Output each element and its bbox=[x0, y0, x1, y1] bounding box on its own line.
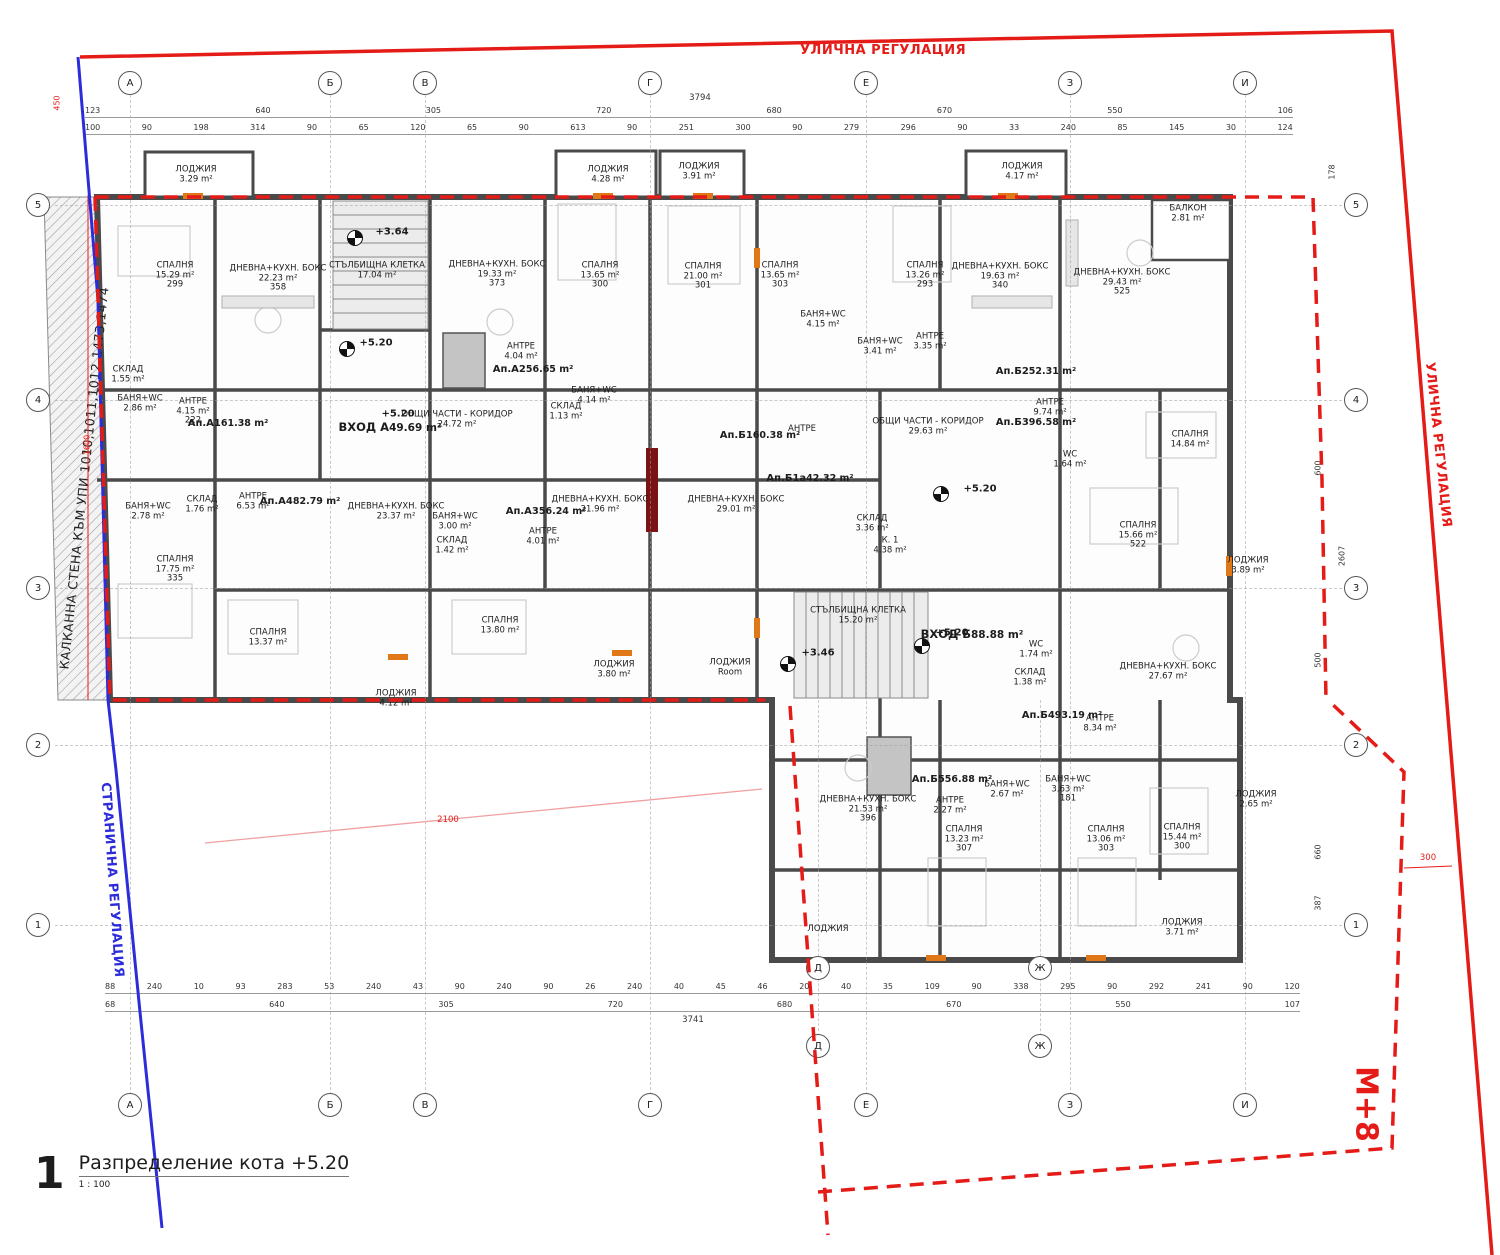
dim-value: 720 bbox=[596, 106, 611, 115]
street-regulation-label-top: УЛИЧНА РЕГУЛАЦИЯ bbox=[800, 43, 966, 58]
room-label: БАНЯ+WC2.78 m² bbox=[125, 502, 170, 521]
axis-bubble: В bbox=[413, 71, 437, 95]
room-label: СПАЛНЯ15.66 m²522 bbox=[1119, 522, 1158, 551]
dim-value: 90 bbox=[519, 123, 529, 132]
apartment-label: Ап.Б396.58 m² bbox=[996, 417, 1076, 429]
room-area: 3.41 m² bbox=[857, 347, 902, 357]
room-area: 3.80 m² bbox=[593, 670, 634, 680]
grid-line-horizontal bbox=[55, 400, 1347, 401]
dim-value: 680 bbox=[777, 1000, 792, 1009]
room-label: СПАЛНЯ13.80 m² bbox=[481, 616, 520, 635]
party-wall-label: КАЛКАННА СТЕНА КЪМ УПИ 1010,1011,1012,14… bbox=[56, 286, 111, 670]
room-area: 4.28 m² bbox=[587, 175, 628, 185]
bottom-overall-dim: 3741 bbox=[682, 1015, 704, 1025]
room-label: БАНЯ+WC3.00 m² bbox=[432, 512, 477, 531]
room-dim: 358 bbox=[230, 284, 327, 294]
axis-bubble: Ж bbox=[1028, 956, 1052, 980]
room-label: СКЛАД1.55 m² bbox=[111, 365, 144, 384]
room-area: 14.84 m² bbox=[1171, 440, 1210, 450]
survey-point-icon bbox=[933, 486, 949, 502]
dim-value: 300 bbox=[735, 123, 750, 132]
dim-value: 670 bbox=[937, 106, 952, 115]
elevator-a bbox=[443, 333, 485, 388]
room-label: СКЛАД1.38 m² bbox=[1013, 668, 1046, 687]
dim-value: 292 bbox=[1149, 982, 1164, 991]
floor-plan-sheet: УЛИЧНА РЕГУЛАЦИЯ УЛИЧНА РЕГУЛАЦИЯ СТРАНИ… bbox=[0, 0, 1500, 1255]
room-label: АНТРЕ8.34 m² bbox=[1083, 714, 1116, 733]
room-label: СПАЛНЯ13.06 m²303 bbox=[1087, 826, 1126, 855]
dim-value: 198 bbox=[193, 123, 208, 132]
dim-value: 35 bbox=[883, 982, 893, 991]
room-dim: 299 bbox=[156, 281, 195, 291]
drawing-title: Разпределение кота +5.20 bbox=[79, 1152, 350, 1177]
room-name: Ап.Б5 bbox=[912, 774, 945, 785]
dim-value: 550 bbox=[1107, 106, 1122, 115]
room-area: 4.01 m² bbox=[526, 537, 559, 547]
room-name: Ап.А3 bbox=[506, 506, 539, 517]
room-label: СПАЛНЯ14.84 m² bbox=[1171, 430, 1210, 449]
room-dim: 301 bbox=[684, 282, 723, 292]
room-area: 2.67 m² bbox=[984, 790, 1029, 800]
level-mark: +3.64 bbox=[375, 226, 408, 237]
room-label: ДНЕВНА+КУХН. БОКС29.43 m²525 bbox=[1074, 269, 1171, 298]
room-label: ЛОДЖИЯ2.65 m² bbox=[1235, 790, 1276, 809]
dim-value: 90 bbox=[307, 123, 317, 132]
room-dim: 396 bbox=[820, 815, 917, 825]
room-area: 8.34 m² bbox=[1083, 724, 1116, 734]
room-area: 9.74 m² bbox=[1033, 408, 1066, 418]
axis-bubble: Б bbox=[318, 1093, 342, 1117]
room-label: WC1.64 m² bbox=[1053, 450, 1086, 469]
dim-value: 670 bbox=[946, 1000, 961, 1009]
room-name: Ап.А1 bbox=[188, 418, 221, 429]
room-label: СПАЛНЯ17.75 m²335 bbox=[156, 556, 195, 585]
room-dim: 307 bbox=[945, 845, 984, 855]
dim-value: 10 bbox=[194, 982, 204, 991]
room-area: Room bbox=[709, 668, 750, 678]
room-area: 88.88 m² bbox=[971, 629, 1023, 641]
room-label: БАНЯ+WC2.67 m² bbox=[984, 780, 1029, 799]
dim-value: 283 bbox=[277, 982, 292, 991]
room-label: ЛОДЖИЯ3.80 m² bbox=[593, 660, 634, 679]
survey-point-icon bbox=[347, 230, 363, 246]
dim-value: 241 bbox=[1196, 982, 1211, 991]
room-area: 52.31 m² bbox=[1029, 366, 1076, 377]
axis-bubble: 5 bbox=[26, 193, 50, 217]
room-dim: 300 bbox=[581, 281, 620, 291]
dim-value: 26 bbox=[585, 982, 595, 991]
axis-bubble: 1 bbox=[26, 913, 50, 937]
axis-bubble: Д bbox=[806, 1034, 830, 1058]
top-overall-dim: 3794 bbox=[689, 93, 711, 103]
room-label: БАНЯ+WC3.41 m² bbox=[857, 337, 902, 356]
dim-value: 640 bbox=[255, 106, 270, 115]
dim-value: 90 bbox=[142, 123, 152, 132]
street-regulation-label-right: УЛИЧНА РЕГУЛАЦИЯ bbox=[1422, 362, 1454, 529]
room-area: 3.91 m² bbox=[678, 172, 719, 182]
drawing-scale: 1 : 100 bbox=[79, 1180, 350, 1190]
dim-line bbox=[105, 993, 1300, 994]
room-label: ДНЕВНА+КУХН. БОКС22.23 m²358 bbox=[230, 265, 327, 294]
dim-value: 123 bbox=[85, 106, 100, 115]
room-label: СТЪЛБИЩНА КЛЕТКА17.04 m² bbox=[329, 261, 425, 280]
room-area: 2.86 m² bbox=[117, 404, 162, 414]
axis-bubble: 3 bbox=[26, 576, 50, 600]
room-area: 56.24 m² bbox=[539, 506, 586, 517]
dim-value: 40 bbox=[674, 982, 684, 991]
room-label: СПАЛНЯ21.00 m²301 bbox=[684, 263, 723, 292]
room-area: 2.65 m² bbox=[1235, 800, 1276, 810]
room-dim: 340 bbox=[952, 282, 1049, 292]
bottom-dim-row-1: 8824010932835324043902409026240404546204… bbox=[105, 983, 1300, 992]
room-label: ЛОДЖИЯ4.17 m² bbox=[1001, 162, 1042, 181]
dim-value: 53 bbox=[324, 982, 334, 991]
axis-bubble: А bbox=[118, 1093, 142, 1117]
axis-bubble: Г bbox=[638, 1093, 662, 1117]
dim-value: 65 bbox=[467, 123, 477, 132]
dim-value: 120 bbox=[1284, 982, 1299, 991]
room-label: ДНЕВНА+КУХН. БОКС19.63 m²340 bbox=[952, 263, 1049, 292]
axis-bubble: 1 bbox=[1344, 913, 1368, 937]
grid-line-vertical bbox=[130, 95, 131, 1100]
room-label: СКЛАД1.42 m² bbox=[435, 536, 468, 555]
room-area: 2.78 m² bbox=[125, 512, 170, 522]
room-label: АНТРЕ4.01 m² bbox=[526, 527, 559, 546]
room-area: 3.89 m² bbox=[1227, 566, 1268, 576]
room-label: СПАЛНЯ13.65 m²300 bbox=[581, 262, 620, 291]
pink-offset-line bbox=[205, 789, 762, 843]
room-label: ЛОДЖИЯ3.91 m² bbox=[678, 162, 719, 181]
dim-value: 90 bbox=[972, 982, 982, 991]
room-label: СПАЛНЯ13.65 m²303 bbox=[761, 262, 800, 291]
regulation-overlay bbox=[0, 0, 1500, 1255]
grid-line-horizontal bbox=[55, 745, 1347, 746]
room-label: АНТРЕ9.74 m² bbox=[1033, 398, 1066, 417]
dim-value: 240 bbox=[147, 982, 162, 991]
room-area: 4.04 m² bbox=[504, 352, 537, 362]
furniture bbox=[118, 204, 1216, 926]
top-dim-row-2: 1009019831490651206590613902513009027929… bbox=[85, 124, 1293, 133]
entrance-label: ВХОД Б88.88 m² bbox=[921, 628, 1024, 642]
dim-value: 338 bbox=[1013, 982, 1028, 991]
dim-value: 240 bbox=[627, 982, 642, 991]
dim-value: 65 bbox=[359, 123, 369, 132]
room-label: СТЪЛБИЩНА КЛЕТКА15.20 m² bbox=[810, 606, 906, 625]
room-dim: 303 bbox=[1087, 845, 1126, 855]
dim-value: 90 bbox=[792, 123, 802, 132]
section-bar bbox=[646, 448, 658, 532]
axis-bubble: 4 bbox=[1344, 388, 1368, 412]
apartment-label: Ап.А356.24 m² bbox=[506, 506, 587, 518]
room-name: Ап.Б1а bbox=[766, 473, 806, 484]
side-dim-value: 660 bbox=[1314, 844, 1323, 859]
room-label: СПАЛНЯ15.29 m²299 bbox=[156, 262, 195, 291]
axis-bubble: З bbox=[1058, 1093, 1082, 1117]
room-label: ОБЩИ ЧАСТИ - КОРИДОР29.63 m² bbox=[872, 417, 983, 436]
dim-value: 550 bbox=[1115, 1000, 1130, 1009]
dim-value: 40 bbox=[841, 982, 851, 991]
survey-point-icon bbox=[780, 656, 796, 672]
dim-value: 90 bbox=[543, 982, 553, 991]
room-area: 13.37 m² bbox=[249, 638, 288, 648]
room-label: ЛОДЖИЯ3.89 m² bbox=[1227, 556, 1268, 575]
room-label: ЛОДЖИЯ3.29 m² bbox=[175, 165, 216, 184]
room-dim: 303 bbox=[761, 281, 800, 291]
room-label: ДНЕВНА+КУХН. БОКС29.01 m² bbox=[688, 495, 785, 514]
room-label: АНТРЕ3.35 m² bbox=[913, 332, 946, 351]
room-name: Ап.А4 bbox=[260, 496, 293, 507]
apartment-label: Ап.А161.38 m² bbox=[188, 418, 269, 430]
dim-value: 90 bbox=[627, 123, 637, 132]
side-dim-value: 500 bbox=[1314, 652, 1323, 667]
room-label: ДНЕВНА+КУХН. БОКС23.37 m² bbox=[348, 502, 445, 521]
room-area: 15.20 m² bbox=[810, 616, 906, 626]
dim-value: 680 bbox=[767, 106, 782, 115]
setback-right-dim: 300 bbox=[1420, 853, 1436, 863]
dim-value: 240 bbox=[496, 982, 511, 991]
dim-value: 106 bbox=[1278, 106, 1293, 115]
room-label: ЛОДЖИЯ4.28 m² bbox=[587, 165, 628, 184]
dim-value: 90 bbox=[455, 982, 465, 991]
room-dim: 525 bbox=[1074, 288, 1171, 298]
room-area: 4.17 m² bbox=[1001, 172, 1042, 182]
dim-value: 240 bbox=[1061, 123, 1076, 132]
dim-value: 43 bbox=[413, 982, 423, 991]
room-label: БАНЯ+WC3.63 m²181 bbox=[1045, 776, 1090, 805]
axis-bubble: И bbox=[1233, 71, 1257, 95]
axis-bubble: Е bbox=[854, 1093, 878, 1117]
side-dim-value: 1600 bbox=[83, 435, 92, 455]
zone-label: М+8 bbox=[1349, 1066, 1384, 1142]
room-label: ЛОДЖИЯRoom bbox=[709, 658, 750, 677]
room-dim: 373 bbox=[449, 280, 546, 290]
grid-line-vertical bbox=[866, 95, 867, 1100]
room-area: 1.64 m² bbox=[1053, 460, 1086, 470]
room-area: 29.63 m² bbox=[872, 427, 983, 437]
room-dim: 181 bbox=[1045, 795, 1090, 805]
room-label: СПАЛНЯ13.37 m² bbox=[249, 628, 288, 647]
room-area: 3.71 m² bbox=[1161, 928, 1202, 938]
dim-value: 251 bbox=[679, 123, 694, 132]
room-label: ЛОДЖИЯ4.12 m² bbox=[375, 689, 416, 708]
grid-line-horizontal bbox=[55, 925, 1347, 926]
room-name: Ап.Б4 bbox=[1022, 710, 1055, 721]
room-area: 3.36 m² bbox=[855, 524, 888, 534]
axis-bubble: З bbox=[1058, 71, 1082, 95]
axis-bubble: 2 bbox=[26, 733, 50, 757]
room-name: ВХОД Б bbox=[921, 627, 971, 641]
room-area: 2.27 m² bbox=[933, 806, 966, 816]
dim-value: 613 bbox=[570, 123, 585, 132]
room-name: ЛОДЖИЯ bbox=[807, 925, 848, 935]
side-dim-value: 450 bbox=[53, 95, 62, 110]
apartment-label: Ап.Б1а42.32 m² bbox=[766, 473, 853, 485]
room-area: 2.81 m² bbox=[1169, 214, 1206, 224]
dim-value: 93 bbox=[235, 982, 245, 991]
room-dim: 335 bbox=[156, 575, 195, 585]
bottom-dim-row-2: 68640305720680670550107 bbox=[105, 1001, 1300, 1010]
level-mark: +5.20 bbox=[963, 483, 996, 494]
axis-bubble: Г bbox=[638, 71, 662, 95]
room-label: СКЛАД1.13 m² bbox=[549, 402, 582, 421]
room-name: Ап.Б1 bbox=[720, 430, 753, 441]
dim-value: 20 bbox=[799, 982, 809, 991]
room-label: WC1.74 m² bbox=[1019, 640, 1052, 659]
dim-line bbox=[105, 1011, 1300, 1012]
plan-linework bbox=[0, 0, 1500, 1255]
axis-bubble: 5 bbox=[1344, 193, 1368, 217]
room-label: БАНЯ+WC4.15 m² bbox=[800, 310, 845, 329]
room-area: 1.55 m² bbox=[111, 375, 144, 385]
side-regulation-label: СТРАНИЧНА РЕГУЛАЦИЯ bbox=[98, 782, 127, 978]
grid-line-horizontal bbox=[55, 205, 1347, 206]
room-label: К. 14.38 m² bbox=[873, 536, 906, 555]
grid-line-vertical bbox=[650, 95, 651, 1100]
room-dim: 300 bbox=[1163, 843, 1202, 853]
dim-line bbox=[85, 117, 1293, 118]
setback-tick bbox=[1404, 866, 1452, 868]
room-label: СПАЛНЯ13.23 m²307 bbox=[945, 826, 984, 855]
axis-bubble: Д bbox=[806, 956, 830, 980]
room-area: 17.04 m² bbox=[329, 271, 425, 281]
room-label: СПАЛНЯ15.44 m²300 bbox=[1163, 824, 1202, 853]
room-area: 82.79 m² bbox=[293, 496, 340, 507]
room-label: ДНЕВНА+КУХН. БОКС27.67 m² bbox=[1120, 662, 1217, 681]
room-dim: 293 bbox=[906, 281, 945, 291]
side-dim-value: 600 bbox=[1314, 460, 1323, 475]
room-name: ВХОД А bbox=[339, 420, 390, 434]
room-area: 13.80 m² bbox=[481, 626, 520, 636]
axis-bubble: И bbox=[1233, 1093, 1257, 1117]
axis-bubble: А bbox=[118, 71, 142, 95]
dim-value: 305 bbox=[438, 1000, 453, 1009]
room-area: 96.58 m² bbox=[1029, 417, 1076, 428]
grid-line-vertical bbox=[425, 95, 426, 1100]
axis-bubble: 2 bbox=[1344, 733, 1368, 757]
room-area: 1.13 m² bbox=[549, 412, 582, 422]
dim-value: 90 bbox=[957, 123, 967, 132]
room-area: 49.69 m² bbox=[389, 422, 441, 434]
room-label: ДНЕВНА+КУХН. БОКС21.53 m²396 bbox=[820, 796, 917, 825]
dim-value: 240 bbox=[366, 982, 381, 991]
room-label: СКЛАД3.36 m² bbox=[855, 514, 888, 533]
grid-line-vertical bbox=[1245, 95, 1246, 1100]
dim-value: 68 bbox=[105, 1000, 115, 1009]
room-area: 4.12 m² bbox=[375, 699, 416, 709]
grid-line-vertical bbox=[330, 95, 331, 1100]
threshold-markers bbox=[183, 193, 1232, 961]
dim-value: 90 bbox=[1243, 982, 1253, 991]
room-area: 23.37 m² bbox=[348, 512, 445, 522]
grid-line-vertical bbox=[1070, 95, 1071, 1100]
dim-value: 640 bbox=[269, 1000, 284, 1009]
room-label: АНТРЕ bbox=[788, 425, 816, 435]
dim-value: 85 bbox=[1117, 123, 1127, 132]
room-label: АНТРЕ2.27 m² bbox=[933, 796, 966, 815]
dim-value: 33 bbox=[1009, 123, 1019, 132]
top-dim-row-1: 123640305720680670550106 bbox=[85, 107, 1293, 116]
room-name: Ап.Б3 bbox=[996, 417, 1029, 428]
axis-bubble: Ж bbox=[1028, 1034, 1052, 1058]
room-area: 4.38 m² bbox=[873, 546, 906, 556]
upi-dashed-boundary bbox=[95, 197, 1404, 1235]
elevator-b bbox=[867, 737, 911, 795]
dim-value: 120 bbox=[410, 123, 425, 132]
room-area: 1.38 m² bbox=[1013, 678, 1046, 688]
room-name: Ап.А2 bbox=[493, 364, 526, 375]
dim-value: 100 bbox=[85, 123, 100, 132]
room-area: 3.00 m² bbox=[432, 522, 477, 532]
room-label: СКЛАД1.76 m² bbox=[185, 495, 218, 514]
grid-line-horizontal bbox=[55, 588, 1347, 589]
axis-bubble: 4 bbox=[26, 388, 50, 412]
dim-value: 314 bbox=[250, 123, 265, 132]
dim-value: 107 bbox=[1285, 1000, 1300, 1009]
party-wall-hatch bbox=[44, 197, 112, 700]
drawing-number: 1 bbox=[34, 1152, 65, 1196]
room-area: 1.42 m² bbox=[435, 546, 468, 556]
apartment-label: Ап.А482.79 m² bbox=[260, 496, 341, 508]
room-area: 42.32 m² bbox=[806, 473, 853, 484]
dim-value: 295 bbox=[1060, 982, 1075, 991]
dim-value: 88 bbox=[105, 982, 115, 991]
room-label: СПАЛНЯ13.26 m²293 bbox=[906, 262, 945, 291]
dim-value: 305 bbox=[426, 106, 441, 115]
room-label: БАНЯ+WC2.86 m² bbox=[117, 394, 162, 413]
room-area: 1.74 m² bbox=[1019, 650, 1052, 660]
dim-value: 145 bbox=[1169, 123, 1184, 132]
dim-value: 124 bbox=[1277, 123, 1292, 132]
room-name: Ап.Б2 bbox=[996, 366, 1029, 377]
dim-line bbox=[85, 134, 1293, 135]
dim-value: 109 bbox=[925, 982, 940, 991]
level-mark: +5.20 bbox=[359, 337, 392, 348]
room-area: 61.38 m² bbox=[221, 418, 268, 429]
side-dim-value: 387 bbox=[1314, 895, 1323, 910]
axis-bubble: В bbox=[413, 1093, 437, 1117]
room-area: 1.76 m² bbox=[185, 505, 218, 515]
entrance-label: ВХОД А49.69 m² bbox=[339, 421, 442, 435]
apartment-label: Ап.А256.65 m² bbox=[493, 364, 574, 376]
room-name: АНТРЕ bbox=[788, 425, 816, 435]
room-area: 4.15 m² bbox=[800, 320, 845, 330]
room-area: 27.67 m² bbox=[1120, 672, 1217, 682]
room-dim: 522 bbox=[1119, 541, 1158, 551]
dim-value: 296 bbox=[901, 123, 916, 132]
room-label: ЛОДЖИЯ bbox=[807, 925, 848, 935]
room-area: 29.01 m² bbox=[688, 505, 785, 515]
axis-bubble: Б bbox=[318, 71, 342, 95]
apartment-label: Ап.Б556.88 m² bbox=[912, 774, 992, 786]
room-label: БАЛКОН2.81 m² bbox=[1169, 204, 1206, 223]
title-block: 1 Разпределение кота +5.20 1 : 100 bbox=[34, 1152, 349, 1196]
room-label: АНТРЕ4.04 m² bbox=[504, 342, 537, 361]
building-outline bbox=[97, 197, 1240, 960]
side-regulation-line bbox=[78, 57, 162, 1228]
side-dim-value: 2607 bbox=[1338, 546, 1347, 566]
street-regulation-line bbox=[80, 31, 1492, 1255]
dim-value: 45 bbox=[716, 982, 726, 991]
room-label: ЛОДЖИЯ3.71 m² bbox=[1161, 918, 1202, 937]
dim-value: 720 bbox=[608, 1000, 623, 1009]
setback-side-dim: 2100 bbox=[437, 815, 459, 825]
dim-value: 90 bbox=[1107, 982, 1117, 991]
axis-bubble: Е bbox=[854, 71, 878, 95]
survey-point-icon bbox=[339, 341, 355, 357]
dim-value: 279 bbox=[844, 123, 859, 132]
room-area: 3.29 m² bbox=[175, 175, 216, 185]
side-dim-value: 178 bbox=[1328, 164, 1337, 179]
